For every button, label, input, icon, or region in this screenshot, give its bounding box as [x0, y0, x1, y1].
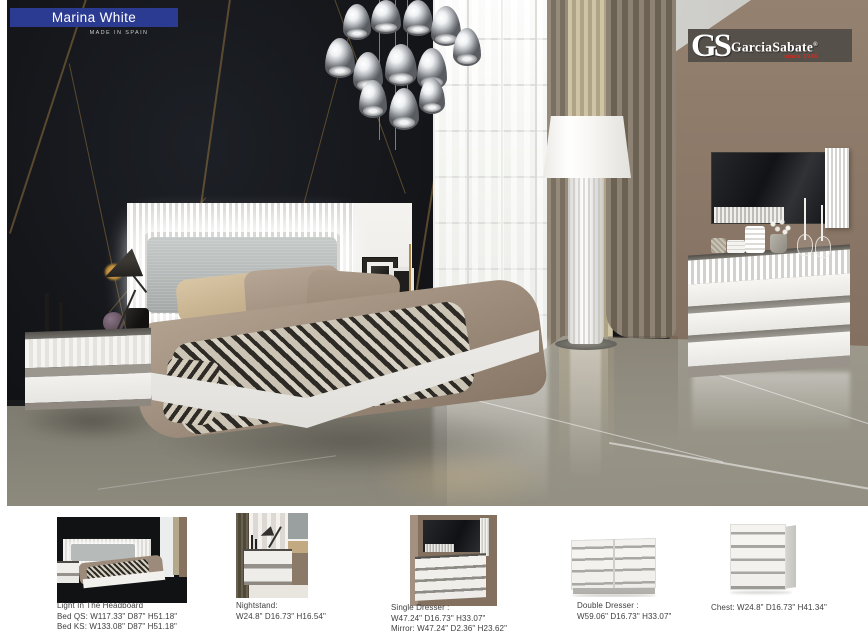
dresser-reflection	[692, 372, 850, 434]
tall-fluted-cabinet	[825, 148, 849, 228]
thumbnail-nightstand	[236, 513, 308, 598]
floor-lamp-column	[568, 176, 603, 344]
registered-mark: ®	[813, 42, 818, 48]
candlestick-holder	[797, 234, 813, 256]
thumbnail-bed	[57, 517, 187, 603]
caption-single-dresser: Single Dresser : W47.24" D16.73" H33.07"…	[391, 603, 507, 635]
candlestick-holder	[815, 236, 831, 258]
warm-floor-glow	[367, 448, 557, 506]
brand-monogram: GS	[691, 32, 729, 60]
brand-name: GarciaSabate®	[731, 39, 818, 54]
caption-line: Mirror: W47.24" D2.36" H23.62"	[391, 624, 507, 635]
plate-stack	[727, 240, 745, 253]
caption-line: W59.06" D16.73" H33.07"	[577, 612, 671, 623]
lamp-reflection	[570, 348, 601, 480]
nightstand	[25, 328, 151, 410]
caption-line: Bed QS: W117.33" D87" H51.18"	[57, 612, 177, 623]
thumbnail-chest	[726, 523, 801, 598]
glass-votive	[711, 238, 726, 253]
floor-lamp-shade	[543, 116, 631, 178]
collection-title-banner: Marina White	[10, 8, 178, 27]
candle	[59, 302, 63, 332]
candle	[45, 293, 49, 332]
caption-line: Light In The Headboard	[57, 601, 177, 612]
bedroom-photo	[7, 0, 868, 506]
flower-vase	[770, 234, 787, 253]
caption-line: W24.8" D16.73" H16.54"	[236, 612, 326, 623]
brand-logo: GS GarciaSabate® since 1946	[688, 29, 852, 62]
double-dresser	[688, 244, 850, 377]
caption-nightstand: Nightstand: W24.8" D16.73" H16.54"	[236, 601, 326, 622]
caption-bed: Light In The Headboard Bed QS: W117.33" …	[57, 601, 177, 633]
caption-line: Nightstand:	[236, 601, 326, 612]
caption-line: Chest: W24.8" D16.73" H41.34"	[711, 603, 827, 614]
caption-line: Bed KS: W133.08" D87" H51.18"	[57, 622, 177, 633]
wall-mirror	[711, 152, 828, 224]
collection-title: Marina White	[52, 10, 136, 25]
caption-double-dresser: Double Dresser : W59.06" D16.73" H33.07"	[577, 601, 671, 622]
made-in-label: MADE IN SPAIN	[64, 30, 174, 36]
caption-line: Double Dresser :	[577, 601, 671, 612]
thumbnail-single-dresser	[410, 515, 497, 606]
thumbnail-double-dresser	[570, 538, 660, 597]
drape-reflection	[608, 336, 678, 446]
caption-line: Single Dresser :	[391, 603, 507, 614]
brand-tagline: since 1946	[731, 54, 818, 60]
caption-line: W47.24" D16.73" H33.07"	[391, 614, 507, 625]
ribbed-vase	[745, 226, 765, 253]
caption-chest: Chest: W24.8" D16.73" H41.34"	[711, 603, 827, 614]
white-flowers	[764, 216, 794, 236]
